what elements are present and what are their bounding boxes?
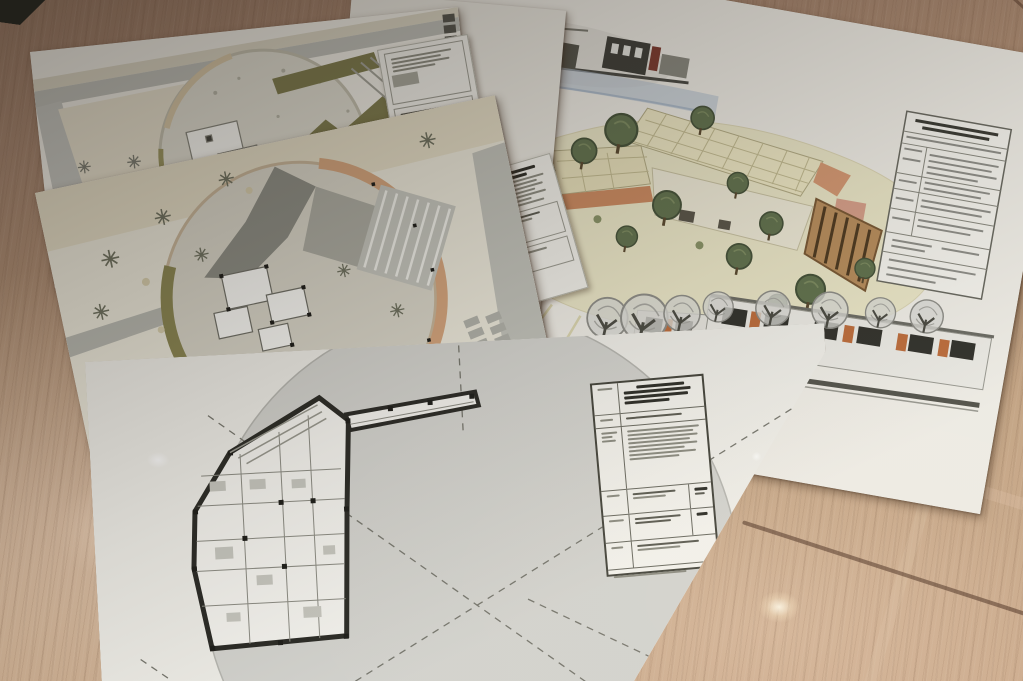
scale-cell [691, 507, 715, 535]
floor-plan-title-block [590, 374, 720, 577]
drawing-number-cell [689, 482, 713, 508]
title-block-description [596, 420, 711, 492]
photo-of-architectural-drawings [0, 0, 1023, 681]
